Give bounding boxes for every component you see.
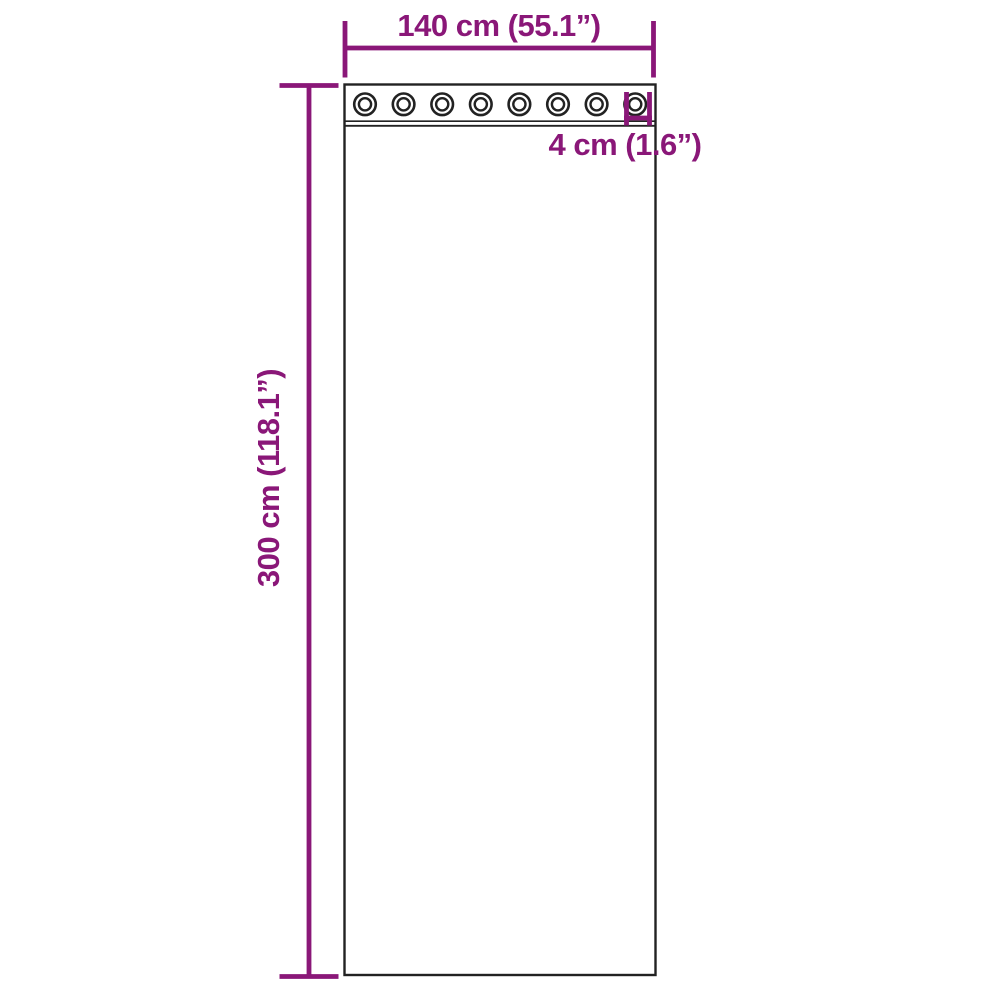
grommet-outer-ring	[509, 94, 531, 116]
grommet-inner-ring	[475, 98, 487, 110]
grommet-outer-ring	[547, 94, 569, 116]
grommet-outer-ring	[393, 94, 415, 116]
height-dimension-label: 300 cm (118.1”)	[251, 369, 287, 587]
grommet-outer-ring	[431, 94, 453, 116]
grommet-inner-ring	[629, 98, 641, 110]
curtain-panel-outline	[345, 85, 656, 976]
grommet-inner-ring	[359, 98, 371, 110]
grommet-inner-ring	[513, 98, 525, 110]
grommets-row	[354, 94, 646, 116]
grommet-inner-ring	[552, 98, 564, 110]
height-dimension-line	[280, 86, 339, 977]
grommet-inner-ring	[436, 98, 448, 110]
grommet-outer-ring	[470, 94, 492, 116]
grommet-outer-ring	[586, 94, 608, 116]
grommet-dimension-label: 4 cm (1.6”)	[548, 127, 701, 163]
header-band-seam	[345, 121, 656, 126]
diagram-canvas: 140 cm (55.1”) 300 cm (118.1”) 4 cm (1.6…	[0, 0, 1000, 1000]
grommet-inner-ring	[591, 98, 603, 110]
grommet-inner-ring	[398, 98, 410, 110]
curtain-dimension-diagram	[0, 0, 1000, 1000]
grommet-outer-ring	[354, 94, 376, 116]
width-dimension-label: 140 cm (55.1”)	[397, 8, 600, 44]
